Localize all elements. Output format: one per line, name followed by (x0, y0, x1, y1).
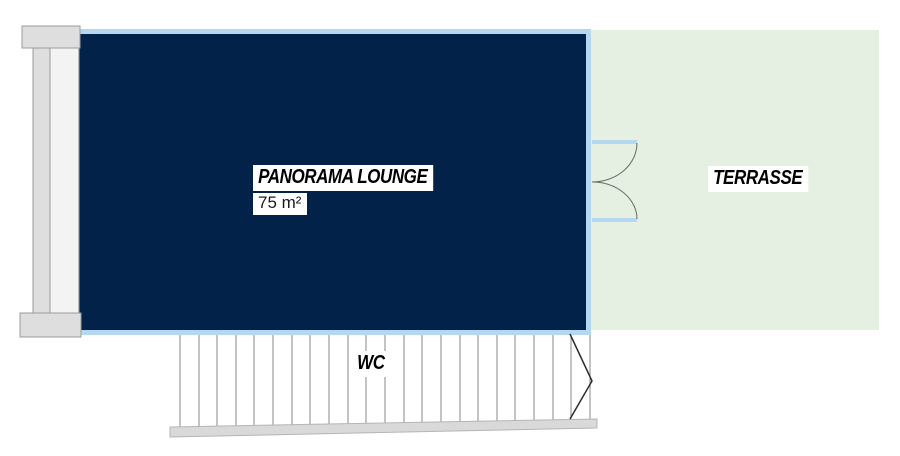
door-leaf-top (592, 140, 637, 144)
column-bottom-flange (20, 313, 81, 337)
lounge-area-label: 75 m² (253, 193, 307, 215)
stair-treads (180, 335, 590, 427)
door-leaf-bottom (592, 218, 637, 222)
stair-direction-icon (570, 334, 592, 419)
column (20, 26, 81, 337)
column-shaft-highlight (50, 48, 78, 313)
terrasse-label: TERRASSE (708, 166, 808, 192)
column-top-flange (22, 26, 80, 48)
stair-base (170, 419, 597, 437)
floor-plan-drawing (0, 0, 900, 456)
stairs (170, 334, 597, 437)
floor-plan: PANORAMA LOUNGE 75 m² TERRASSE WC (0, 0, 900, 456)
wc-label: WC (352, 351, 391, 377)
lounge-label: PANORAMA LOUNGE (253, 165, 433, 191)
